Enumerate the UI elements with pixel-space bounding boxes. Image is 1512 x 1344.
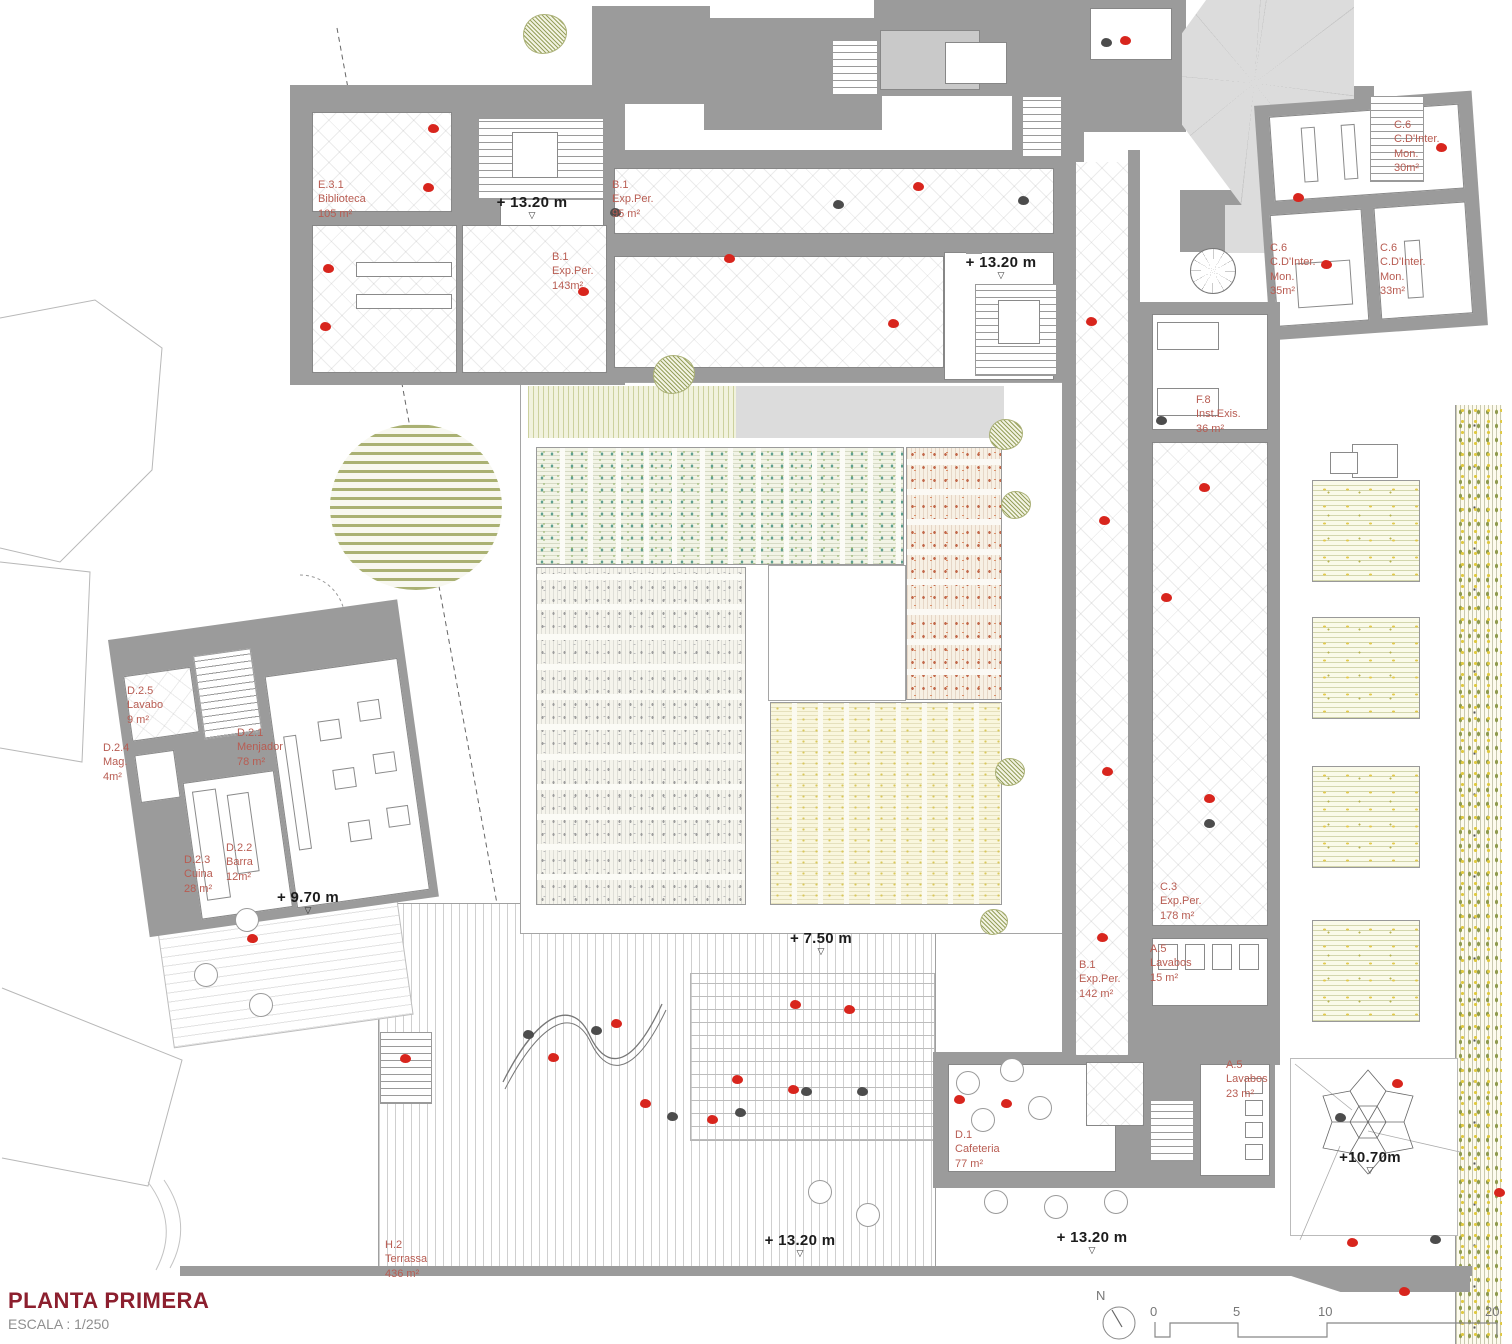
round-table [249,993,273,1017]
person-figure [1001,1099,1012,1108]
dining-table [348,819,373,842]
person-figure [735,1108,746,1117]
level-triangle-icon: ▽ [1089,1246,1096,1255]
person-figure [1161,593,1172,602]
person-figure [788,1085,799,1094]
person-figure [1392,1079,1403,1088]
room-label-a5-15: A.5 Lavabos 15 m² [1150,942,1192,985]
stair-landing [998,300,1040,344]
person-figure [857,1087,868,1096]
toilet-stall [1212,944,1232,970]
garden-court-1 [1312,480,1420,582]
person-figure [724,254,735,263]
scale-tick-20: 20 [1485,1304,1499,1319]
round-table [1028,1096,1052,1120]
person-figure [1099,516,1110,525]
round-table [984,1190,1008,1214]
round-table [1000,1058,1024,1082]
plan-title: PLANTA PRIMERA [8,1288,209,1314]
court-roof-object [1352,444,1398,478]
level-marker: +10.70m▽ [1322,1149,1418,1175]
room-label-c6-35: C.6 C.D'Inter. Mon. 35m² [1270,241,1316,298]
corridor-wall [1128,150,1140,1065]
level-triangle-icon: ▽ [818,947,825,956]
lawn-circle [330,424,502,590]
toilet-stall [1245,1144,1263,1160]
person-figure [1199,483,1210,492]
room-label-c6-30: C.6 C.D'Inter. Mon. 30m² [1394,118,1440,175]
dining-table [357,699,382,722]
east-corridor [1076,162,1128,1055]
level-triangle-icon: ▽ [1367,1166,1374,1175]
person-figure [1102,767,1113,776]
level-marker: + 7.50 m▽ [773,930,869,956]
scale-tick-10: 10 [1318,1304,1332,1319]
round-table [1104,1190,1128,1214]
existing-room [1090,8,1172,60]
exhibition-corridor-lower [614,256,944,368]
terrace-stair [380,1032,432,1104]
level-triangle-icon: ▽ [998,271,1005,280]
level-text: + 13.20 m [497,194,568,211]
room-label-h2: H.2 Terrassa 436 m² [385,1238,427,1281]
site-wall [180,1266,1472,1276]
room-label-d23: D.2.3 Cuina 28 m² [184,853,213,896]
person-figure [611,1019,622,1028]
level-triangle-icon: ▽ [529,211,536,220]
room-label-e31: E.3.1 Biblioteca 105 m² [318,178,366,221]
dining-table [372,751,397,774]
person-figure [1086,317,1097,326]
person-figure [732,1075,743,1084]
dining-table [317,719,342,742]
existing-stair [832,40,878,96]
level-text: + 13.20 m [765,1232,836,1249]
level-triangle-icon: ▽ [797,1249,804,1258]
floor-plan-canvas: E.3.1 Biblioteca 105 m² B.1 Exp.Per. 95 … [0,0,1512,1344]
level-text: + 7.50 m [790,930,852,947]
person-figure [667,1112,678,1121]
person-figure [801,1087,812,1096]
garden-bed-red [906,447,1002,700]
garden-court-2 [1312,617,1420,719]
level-marker: + 13.20 m▽ [1044,1229,1140,1255]
room-label-d25: D.2.5 Lavabo 9 m² [127,684,163,727]
person-figure [1018,196,1029,205]
person-figure [247,934,258,943]
library-table [356,294,452,309]
pilaster-row [614,236,1054,254]
person-figure [1156,416,1167,425]
scale-tick-5: 5 [1233,1304,1240,1319]
person-figure [844,1005,855,1014]
existing-building [592,6,710,104]
room-label-d21: D.2.1 Menjador 78 m² [237,726,283,769]
person-figure [1430,1235,1441,1244]
plan-scale: ESCALA : 1/250 [8,1316,209,1332]
level-text: + 13.20 m [966,254,1037,271]
garden-bed-green [536,447,904,565]
level-marker: + 13.20 m▽ [752,1232,848,1258]
level-text: + 9.70 m [277,889,339,906]
room-label-f8: F.8 Inst.Exis. 36 m² [1196,393,1241,436]
garden-bed-yellow [770,702,1002,905]
level-marker: + 13.20 m▽ [484,194,580,220]
round-table [1044,1195,1068,1219]
room-label-b1-142: B.1 Exp.Per. 142 m² [1079,958,1121,1001]
c3-gallery [1152,442,1268,926]
round-table [956,1071,980,1095]
person-figure [1120,36,1131,45]
garden-court-3 [1312,766,1420,868]
person-figure [1347,1238,1358,1247]
library-room-2 [462,225,607,373]
spiral-stair [1190,248,1236,294]
level-text: +10.70m [1339,1149,1401,1166]
person-figure [1293,193,1304,202]
scale-tick-0: 0 [1150,1304,1157,1319]
person-figure [323,264,334,273]
dining-table [386,805,411,828]
room-label-b1-95: B.1 Exp.Per. 95 m² [612,178,654,221]
toilet-stall [1245,1100,1263,1116]
person-figure [954,1095,965,1104]
garden-bed-gray [536,567,746,905]
library-table [356,262,452,277]
person-figure [1335,1113,1346,1122]
person-figure [707,1115,718,1124]
vegetation-strip [1455,405,1502,1344]
person-figure [1494,1188,1505,1197]
round-table [856,1203,880,1227]
north-label: N [1096,1288,1105,1303]
room-label-d24: D.2.4 Mag. 4m² [103,741,129,784]
person-figure [428,124,439,133]
round-table [194,963,218,987]
room-label-c3: C.3 Exp.Per. 178 m² [1160,880,1202,923]
round-table [235,908,259,932]
southeast-plaza [1290,1058,1458,1236]
level-triangle-icon: ▽ [305,906,312,915]
person-figure [888,319,899,328]
person-figure [523,1030,534,1039]
round-table [808,1180,832,1204]
d24-magatzem [134,750,180,803]
title-block: PLANTA PRIMERA ESCALA : 1/250 [8,1288,209,1332]
person-figure [591,1026,602,1035]
courtyard-walkway [736,386,1004,438]
room-label-c6-33: C.6 C.D'Inter. Mon. 33m² [1380,241,1426,298]
toilet-stall [1239,944,1259,970]
person-figure [640,1099,651,1108]
amphitheater-steps [690,973,935,1141]
person-figure [548,1053,559,1062]
court-roof-object [1330,452,1358,474]
courtyard-hatch-band [528,386,736,438]
equipment [1157,322,1219,350]
south-stair [1150,1100,1194,1162]
dining-table [332,767,357,790]
person-figure [1204,819,1215,828]
room-label-d1: D.1 Cafeteria 77 m² [955,1128,1000,1171]
toilet-stall [1245,1122,1263,1138]
room-label-d22: D.2.2 Barra 12m² [226,841,253,884]
person-figure [320,322,331,331]
level-marker: + 9.70 m▽ [260,889,356,915]
corridor-wall [1062,150,1076,1065]
person-figure [790,1000,801,1009]
person-figure [833,200,844,209]
courtyard-plaza [768,565,906,701]
existing-room [945,42,1007,84]
person-figure [1204,794,1215,803]
room-label-b1-143: B.1 Exp.Per. 143m² [552,250,594,293]
skylight-court [1086,1062,1144,1126]
person-figure [1399,1287,1410,1296]
stair-landing [512,132,558,178]
existing-stair [1022,96,1062,158]
person-figure [1321,260,1332,269]
level-marker: + 13.20 m▽ [953,254,1049,280]
person-figure [423,183,434,192]
room-label-a5-23: A.5 Lavabos 23 m² [1226,1058,1268,1101]
level-text: + 13.20 m [1057,1229,1128,1246]
person-figure [1101,38,1112,47]
garden-court-4 [1312,920,1420,1022]
person-figure [913,182,924,191]
person-figure [1097,933,1108,942]
person-figure [400,1054,411,1063]
